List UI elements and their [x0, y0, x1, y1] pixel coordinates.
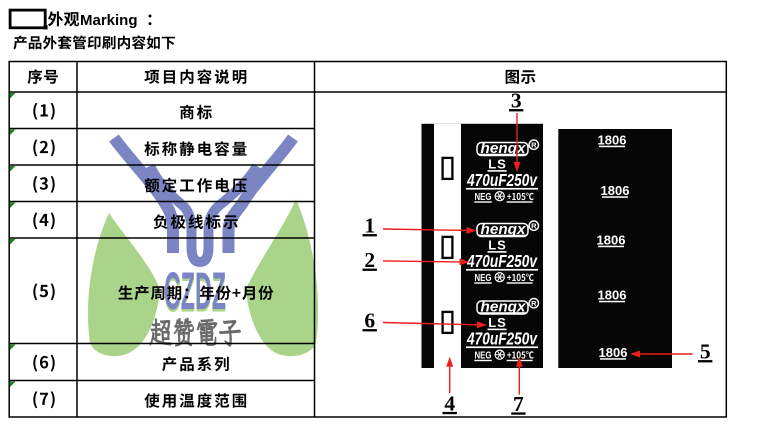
svg-text:1: 1: [364, 214, 375, 238]
svg-text:1806: 1806: [598, 132, 627, 147]
svg-text:2: 2: [364, 248, 375, 272]
svg-text:1806: 1806: [599, 345, 628, 360]
svg-text:R: R: [531, 141, 537, 150]
svg-text:6: 6: [364, 309, 375, 333]
svg-text:470uF250v: 470uF250v: [466, 251, 538, 271]
svg-text:4: 4: [444, 391, 455, 415]
svg-text:R: R: [531, 299, 537, 308]
svg-text:NEG: NEG: [475, 191, 492, 203]
svg-text:3: 3: [511, 89, 522, 113]
svg-text:470uF250v: 470uF250v: [466, 329, 538, 349]
svg-text:NEG: NEG: [475, 272, 492, 284]
svg-text:1806: 1806: [598, 287, 627, 302]
svg-text:1806: 1806: [597, 232, 626, 247]
svg-text:470uF250v: 470uF250v: [466, 170, 538, 190]
svg-text:5: 5: [700, 340, 711, 364]
svg-text:R: R: [531, 222, 537, 231]
svg-text:7: 7: [513, 392, 524, 416]
svg-text:Marking: Marking: [80, 12, 138, 29]
svg-text:1806: 1806: [601, 183, 630, 198]
svg-text:NEG: NEG: [475, 350, 492, 362]
